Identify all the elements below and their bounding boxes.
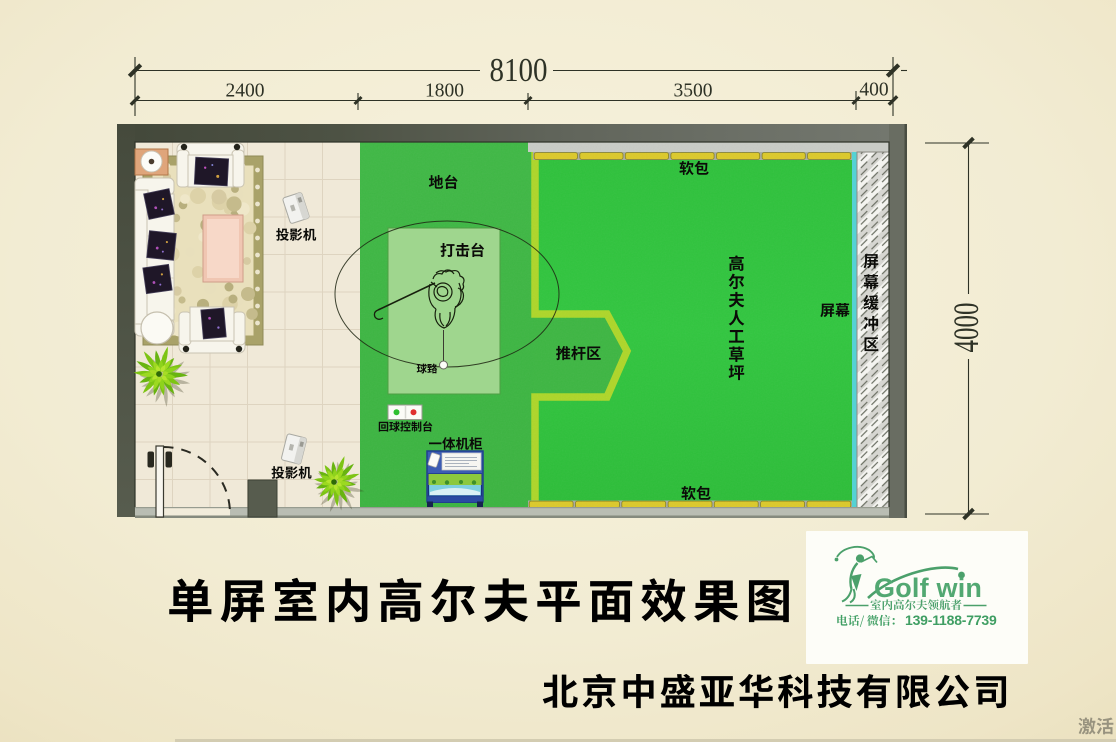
svg-text:2400: 2400 (226, 81, 265, 102)
svg-text:1800: 1800 (425, 81, 464, 102)
svg-text:3500: 3500 (674, 81, 713, 102)
svg-text:4000: 4000 (946, 303, 986, 353)
svg-text:139-1188-7739: 139-1188-7739 (905, 612, 997, 628)
svg-text:400: 400 (859, 80, 888, 101)
svg-text:8100: 8100 (490, 52, 548, 89)
svg-text:Golf win: Golf win (874, 573, 982, 603)
